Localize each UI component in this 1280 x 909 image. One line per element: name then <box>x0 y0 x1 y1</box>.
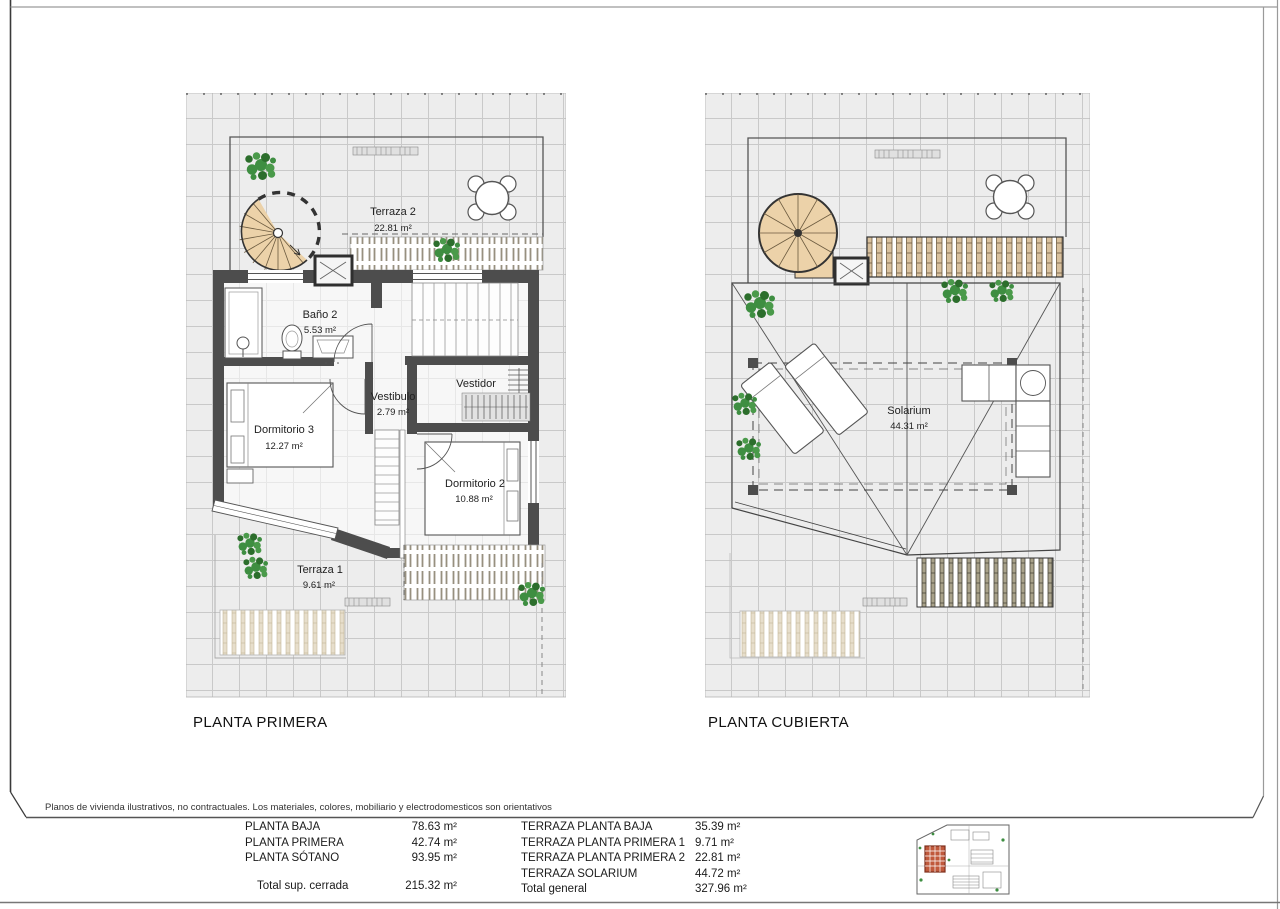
elevator <box>315 256 352 285</box>
room-area-solarium: 44.31 m² <box>890 421 928 432</box>
plan-title-left: PLANTA PRIMERA <box>193 714 328 731</box>
room-label-terraza2: Terraza 2 <box>370 206 416 218</box>
summary-value: 9.71 m² <box>695 836 734 852</box>
summary-value: 42.74 m² <box>377 836 457 852</box>
room-label-solarium: Solarium <box>887 405 930 417</box>
floor-plan-planta-primera: Terraza 2 22.81 m² Baño 2 5.53 m² Dormit… <box>186 93 566 705</box>
room-area-dormitorio3: 12.27 m² <box>265 441 303 452</box>
summary-total-closed: Total sup. cerrada 215.32 m² <box>245 879 457 895</box>
room-area-terraza2: 22.81 m² <box>374 223 412 234</box>
terrace1-railing <box>404 545 545 600</box>
summary-value: 22.81 m² <box>695 851 740 867</box>
summary-label: Total general <box>521 882 695 898</box>
summary-closed-areas: PLANTA BAJA 78.63 m² PLANTA PRIMERA 42.7… <box>245 820 457 867</box>
room-label-terraza1: Terraza 1 <box>297 564 343 576</box>
summary-total-general: Total general 327.96 m² <box>521 882 781 898</box>
summary-row: PLANTA BAJA 78.63 m² <box>245 820 457 836</box>
summary-row: PLANTA PRIMERA 42.74 m² <box>245 836 457 852</box>
dining-table <box>986 175 1034 219</box>
room-label-bano2: Baño 2 <box>303 309 338 321</box>
floor-plan-planta-cubierta: Solarium 44.31 m² <box>705 93 1090 705</box>
summary-value: 327.96 m² <box>695 882 747 898</box>
room-area-bano2: 5.53 m² <box>304 325 336 336</box>
summary-value: 93.95 m² <box>377 851 457 867</box>
unit-highlight <box>925 846 945 872</box>
summary-value: 44.72 m² <box>695 867 740 883</box>
summary-label: TERRAZA PLANTA BAJA <box>521 820 695 836</box>
room-label-dormitorio2: Dormitorio 2 <box>445 478 505 490</box>
summary-row: TERRAZA PLANTA PRIMERA 1 9.71 m² <box>521 836 781 852</box>
room-label-vestidor: Vestidor <box>456 378 496 390</box>
summary-row: PLANTA SÓTANO 93.95 m² <box>245 851 457 867</box>
summary-value: 78.63 m² <box>377 820 457 836</box>
summary-label: PLANTA PRIMERA <box>245 836 377 852</box>
pergola-slats <box>867 237 1063 277</box>
site-minimap <box>913 820 1013 898</box>
room-label-dormitorio3: Dormitorio 3 <box>254 424 314 436</box>
summary-value: 215.32 m² <box>377 879 457 895</box>
summary-row: TERRAZA PLANTA PRIMERA 2 22.81 m² <box>521 851 781 867</box>
summary-label: PLANTA BAJA <box>245 820 377 836</box>
summary-row: TERRAZA PLANTA BAJA 35.39 m² <box>521 820 781 836</box>
summary-value: 35.39 m² <box>695 820 740 836</box>
room-area-dormitorio2: 10.88 m² <box>455 494 493 505</box>
summary-label: TERRAZA SOLARIUM <box>521 867 695 883</box>
dining-table <box>468 176 516 220</box>
summary-label: TERRAZA PLANTA PRIMERA 1 <box>521 836 695 852</box>
room-area-vestibulo: 2.79 m² <box>377 407 409 418</box>
floorplan-sheet: { "page": { "disclaimer": "Planos de viv… <box>0 0 1280 909</box>
summary-label: PLANTA SÓTANO <box>245 851 377 867</box>
summary-label: Total sup. cerrada <box>245 879 377 895</box>
summary-terrace-areas: TERRAZA PLANTA BAJA 35.39 m² TERRAZA PLA… <box>521 820 781 898</box>
disclaimer-text: Planos de vivienda ilustrativos, no cont… <box>45 802 552 813</box>
plan-title-right: PLANTA CUBIERTA <box>708 714 849 731</box>
summary-label: TERRAZA PLANTA PRIMERA 2 <box>521 851 695 867</box>
elevator <box>835 258 868 284</box>
room-area-terraza1: 9.61 m² <box>303 580 335 591</box>
room-label-vestibulo: Vestibulo <box>371 391 416 403</box>
summary-row: TERRAZA SOLARIUM 44.72 m² <box>521 867 781 883</box>
